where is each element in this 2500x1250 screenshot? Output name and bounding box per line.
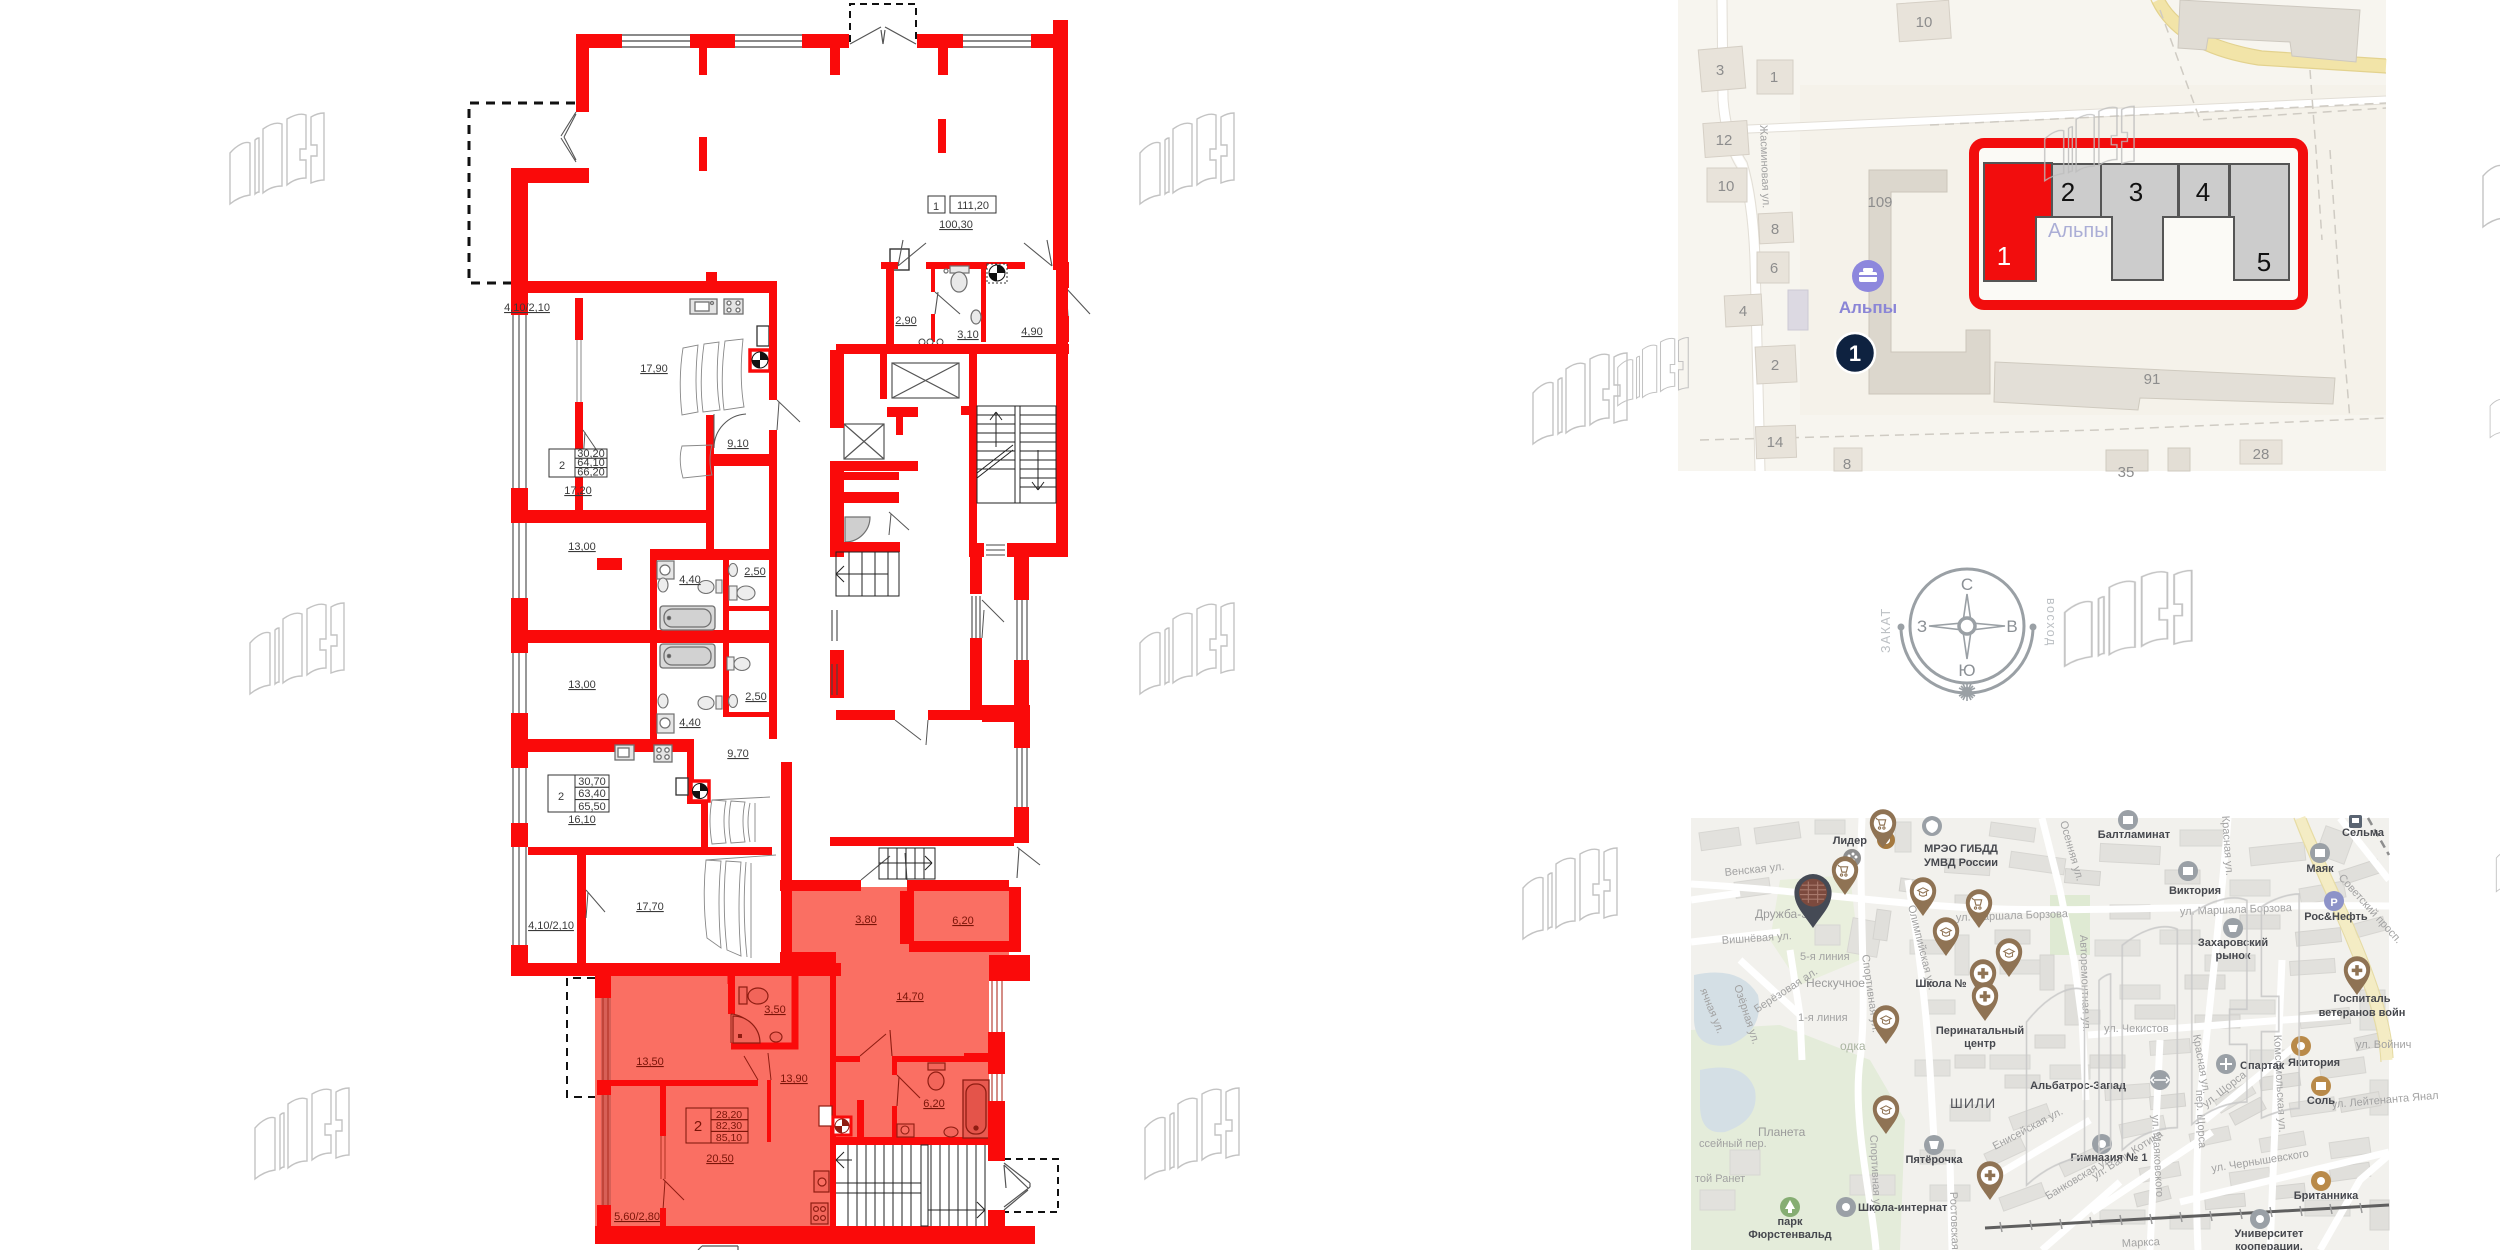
svg-text:ЗАКАТ: ЗАКАТ (1879, 607, 1893, 653)
svg-text:2,50: 2,50 (744, 566, 765, 578)
svg-text:Университет: Университет (2235, 1228, 2305, 1240)
svg-text:4: 4 (2196, 177, 2210, 207)
svg-text:Альпы: Альпы (1839, 298, 1897, 317)
svg-text:2,90: 2,90 (895, 315, 916, 327)
svg-text:Захаровский: Захаровский (2198, 937, 2268, 949)
svg-text:8: 8 (1771, 221, 1779, 238)
svg-text:66,20: 66,20 (577, 467, 605, 479)
svg-text:10: 10 (1916, 14, 1933, 31)
svg-text:65,50: 65,50 (578, 801, 606, 813)
svg-text:13,50: 13,50 (636, 1056, 664, 1068)
svg-text:1: 1 (1770, 69, 1778, 86)
svg-text:той Ранет: той Ранет (1695, 1173, 1745, 1185)
svg-text:Планета: Планета (1758, 1125, 1806, 1139)
svg-text:8: 8 (1843, 456, 1851, 473)
svg-text:5,60/2,80: 5,60/2,80 (614, 1211, 660, 1223)
svg-text:35: 35 (2118, 464, 2135, 481)
svg-text:Госпиталь: Госпиталь (2333, 993, 2390, 1005)
svg-text:Лидер: Лидер (1833, 835, 1868, 847)
svg-text:4,10/2,10: 4,10/2,10 (528, 920, 574, 932)
svg-text:91: 91 (2144, 371, 2161, 388)
svg-text:13,00: 13,00 (568, 541, 596, 553)
svg-text:3: 3 (1716, 62, 1724, 79)
svg-text:4,40: 4,40 (679, 717, 700, 729)
svg-text:2: 2 (2061, 177, 2075, 207)
svg-text:Соль: Соль (2307, 1095, 2335, 1107)
svg-text:85,10: 85,10 (716, 1132, 742, 1144)
svg-text:ШИЛИ: ШИЛИ (1950, 1095, 1996, 1111)
svg-text:ул. Войнич: ул. Войнич (2356, 1039, 2411, 1051)
svg-text:1: 1 (1849, 341, 1861, 366)
svg-text:2: 2 (1771, 357, 1779, 374)
svg-text:Нескучное: Нескучное (1806, 976, 1865, 990)
svg-text:20,50: 20,50 (706, 1153, 734, 1165)
svg-text:парк: парк (1778, 1216, 1803, 1228)
svg-text:2: 2 (694, 1118, 702, 1135)
svg-text:Британника: Британника (2294, 1190, 2359, 1202)
svg-text:Маркса: Маркса (2122, 1236, 2162, 1250)
svg-text:3,10: 3,10 (957, 329, 978, 341)
svg-text:Гимназия № 1: Гимназия № 1 (2071, 1152, 2148, 1164)
svg-text:1: 1 (1997, 241, 2011, 271)
svg-text:кооперации,: кооперации, (2235, 1241, 2303, 1250)
svg-text:Рос&Нефть: Рос&Нефть (2304, 911, 2368, 923)
svg-text:100,30: 100,30 (939, 219, 973, 231)
svg-text:12: 12 (1716, 132, 1733, 149)
svg-text:6,20: 6,20 (923, 1098, 944, 1110)
svg-text:Ю: Ю (1958, 661, 1975, 680)
svg-text:5: 5 (2257, 247, 2271, 277)
svg-text:1-я линия: 1-я линия (1798, 1012, 1848, 1024)
svg-text:17,20: 17,20 (564, 485, 592, 497)
svg-text:рынок: рынок (2216, 950, 2251, 962)
svg-text:5-я линия: 5-я линия (1800, 951, 1850, 963)
svg-text:Сельма: Сельма (2342, 827, 2385, 839)
svg-text:9,70: 9,70 (727, 748, 748, 760)
svg-text:4,40: 4,40 (679, 574, 700, 586)
svg-text:Виктория: Виктория (2169, 885, 2221, 897)
svg-text:С: С (1961, 575, 1973, 594)
svg-text:13,90: 13,90 (780, 1073, 808, 1085)
svg-text:111,20: 111,20 (957, 200, 989, 212)
svg-text:14: 14 (1767, 434, 1784, 451)
svg-text:4,10/2,10: 4,10/2,10 (504, 302, 550, 314)
svg-text:1: 1 (933, 201, 939, 213)
svg-text:13,00: 13,00 (568, 679, 596, 691)
svg-text:Альбатрос-Запад: Альбатрос-Запад (2030, 1080, 2126, 1092)
svg-text:3,80: 3,80 (855, 914, 876, 926)
svg-text:одка: одка (1840, 1039, 1866, 1053)
svg-text:центр: центр (1964, 1038, 1996, 1050)
svg-text:Балтламинат: Балтламинат (2098, 829, 2171, 841)
svg-text:4: 4 (1739, 303, 1747, 320)
svg-text:Ростовская ул.: Ростовская ул. (1947, 1192, 1962, 1250)
svg-text:28: 28 (2253, 446, 2270, 463)
svg-text:МРЭО ГИБДД: МРЭО ГИБДД (1924, 843, 1998, 855)
svg-text:82,30: 82,30 (716, 1120, 742, 1132)
svg-text:17,70: 17,70 (636, 901, 664, 913)
svg-text:З: З (1917, 617, 1927, 636)
svg-text:3: 3 (2129, 177, 2143, 207)
svg-text:Школа №: Школа № (1915, 978, 1966, 990)
svg-text:3,50: 3,50 (764, 1004, 785, 1016)
svg-text:9,10: 9,10 (727, 438, 748, 450)
svg-text:восход: восход (2044, 598, 2058, 647)
svg-text:Пятёрочка: Пятёрочка (1905, 1154, 1963, 1166)
svg-text:УМВД России: УМВД России (1924, 857, 1998, 869)
svg-text:Альпы: Альпы (2048, 220, 2109, 242)
svg-text:Фюрстенвальд: Фюрстенвальд (1748, 1229, 1831, 1241)
svg-text:63,40: 63,40 (578, 788, 606, 800)
svg-text:В: В (2006, 617, 2017, 636)
svg-text:6,20: 6,20 (952, 915, 973, 927)
svg-text:2: 2 (558, 791, 564, 803)
svg-text:16,10: 16,10 (568, 814, 596, 826)
svg-text:2,50: 2,50 (745, 691, 766, 703)
svg-text:17,90: 17,90 (640, 363, 668, 375)
svg-text:Перинатальный: Перинатальный (1936, 1025, 2024, 1037)
svg-text:10: 10 (1718, 178, 1735, 195)
svg-text:30,70: 30,70 (578, 776, 606, 788)
svg-text:Якитория: Якитория (2288, 1057, 2340, 1069)
svg-text:ссейный пер.: ссейный пер. (1699, 1138, 1767, 1150)
svg-text:14,70: 14,70 (896, 991, 924, 1003)
svg-text:P: P (2330, 897, 2337, 909)
svg-text:ул. Чекистов: ул. Чекистов (2104, 1023, 2169, 1035)
svg-text:4,90: 4,90 (1021, 326, 1042, 338)
svg-text:Маяк: Маяк (2306, 863, 2334, 875)
svg-text:109: 109 (1867, 194, 1892, 211)
svg-text:ветеранов войн: ветеранов войн (2319, 1007, 2406, 1019)
svg-text:2: 2 (559, 460, 565, 472)
svg-text:6: 6 (1770, 260, 1778, 277)
svg-text:Школа-интернат: Школа-интернат (1858, 1202, 1948, 1214)
